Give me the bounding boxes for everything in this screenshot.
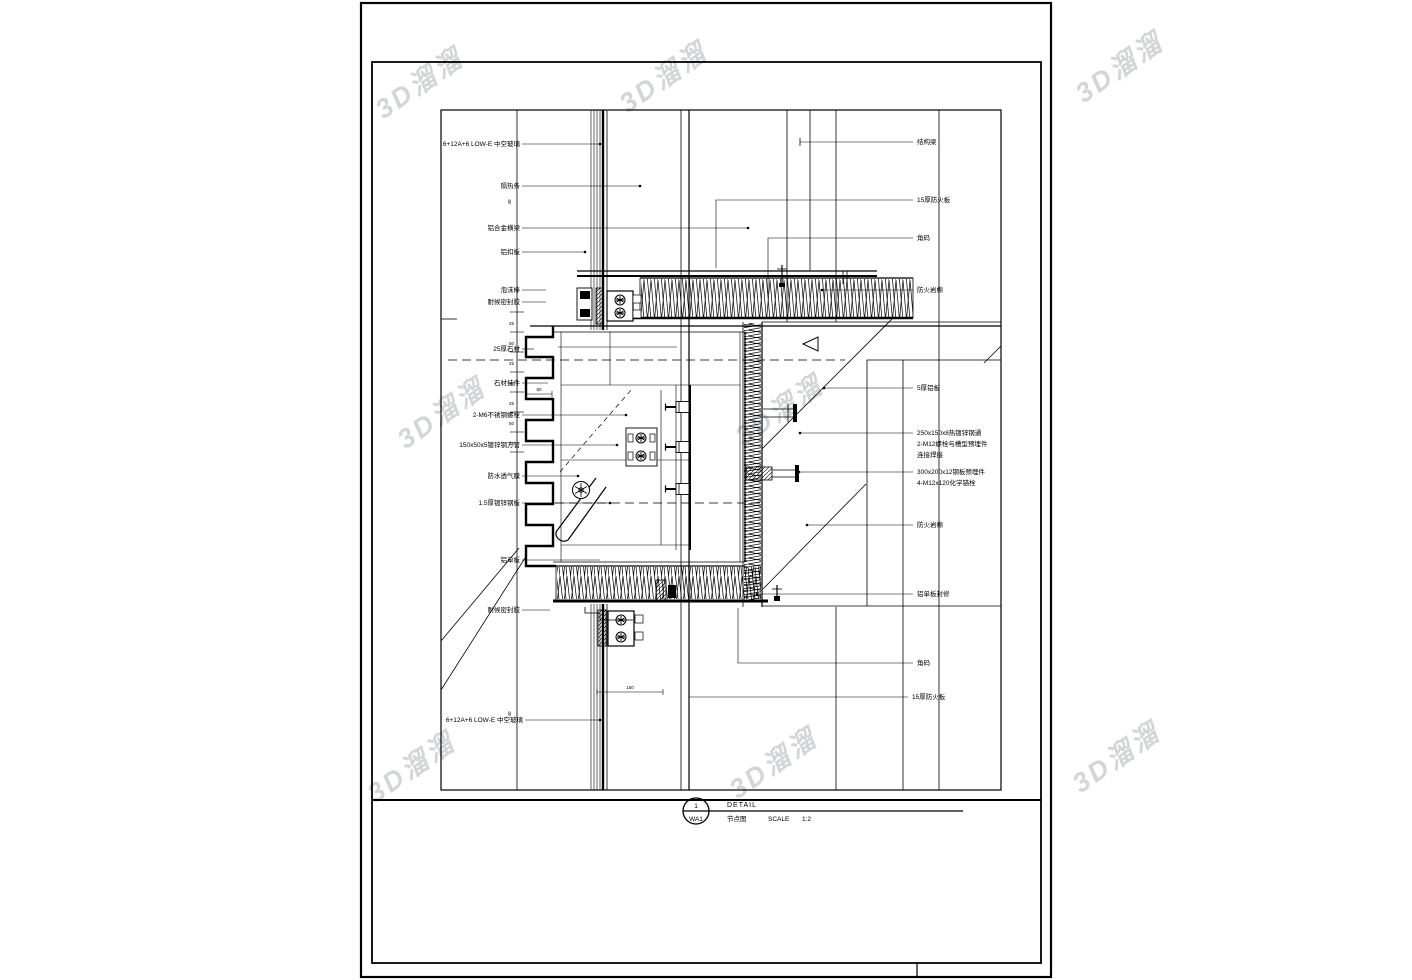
left-label-1: 隔热条 — [501, 181, 521, 190]
right-label-2: 角码 — [917, 233, 931, 242]
dim-50: 50 — [536, 387, 542, 392]
dim-150: 150 — [626, 685, 634, 690]
left-label-5: 耐候密封胶 — [488, 297, 521, 306]
detail-name: 节点图 — [727, 815, 747, 823]
right-label-5b: 2-M12螺栓与槽型预埋件 — [917, 439, 988, 448]
right-label-5a: 250x150x8热镀锌钢通 — [917, 428, 982, 437]
insulation-strip-right — [743, 322, 762, 607]
section-break-lines — [441, 548, 525, 690]
dim-ladder-0: 25 — [509, 321, 515, 326]
page-borders — [361, 3, 1051, 978]
mullion-connector-top — [577, 288, 641, 324]
dim-ladder-4: 25 — [509, 401, 515, 406]
left-labels: 6+12A+6 LOW-E 中空玻璃 隔热条 铝合金横梁 铝扣板 泡沫棒 耐候密… — [443, 139, 524, 724]
right-label-4: 5厚铝板 — [917, 383, 941, 392]
left-label-6: 25厚石材 — [493, 344, 520, 353]
detail-bubble-sheet: WA1 — [689, 816, 703, 823]
dim-ladder-3: 50 — [509, 381, 515, 386]
left-label-0: 6+12A+6 LOW-E 中空玻璃 — [443, 139, 521, 148]
cad-page: 3D溜溜 3D溜溜 3D溜溜 3D溜溜 3D溜溜 3D溜溜 3D溜溜 3D溜溜 — [0, 0, 1412, 980]
left-label-12: 铝单板 — [501, 555, 521, 564]
right-label-7: 防火岩棉 — [917, 520, 944, 529]
left-label-11: 1.5厚镀锌钢板 — [478, 498, 520, 507]
left-label-2: 铝合金横梁 — [488, 223, 521, 232]
right-label-5c: 连接焊接 — [917, 450, 944, 459]
left-label-8: 2-M6不锈钢螺栓 — [473, 410, 521, 419]
dim-ladder-1: 50 — [509, 341, 515, 346]
detail-title: DETAIL — [727, 802, 757, 809]
dim-40-bottom: 40 — [507, 711, 512, 717]
right-label-3: 防火岩棉 — [917, 285, 944, 294]
right-label-9: 角码 — [917, 658, 931, 667]
right-label-10: 15厚防火板 — [912, 692, 946, 701]
right-label-6b: 4-M12x120化学锚栓 — [917, 478, 976, 487]
right-label-1: 15厚防火板 — [917, 195, 951, 204]
left-label-10: 防水透气膜 — [488, 471, 521, 480]
detail-drawing: 6+12A+6 LOW-E 中空玻璃 隔热条 铝合金横梁 铝扣板 泡沫棒 耐候密… — [0, 0, 1412, 980]
dim-ladder-6: 25 — [509, 441, 515, 446]
left-label-3: 铝扣板 — [501, 247, 521, 256]
drawing-frame — [441, 110, 1001, 790]
right-label-6a: 300x200x12钢板预埋件 — [917, 467, 985, 476]
scale-value: 1:2 — [802, 816, 811, 823]
right-labels: 结构梁 15厚防火板 角码 防火岩棉 5厚铝板 250x150x8热镀锌钢通 2… — [912, 137, 988, 701]
left-label-4: 泡沫棒 — [501, 285, 521, 294]
detail-bubble-number: 1 — [694, 803, 698, 810]
dim-40-top: 40 — [507, 199, 512, 205]
slab-region — [530, 319, 1001, 606]
insulation-band-top — [608, 278, 913, 318]
dim-ladder-2: 25 — [509, 361, 515, 366]
right-label-8: 铝单板封修 — [917, 589, 950, 598]
title-block: 1 WA1 DETAIL 节点图 SCALE 1:2 — [683, 798, 963, 824]
dim-ladder-5: 50 — [509, 421, 515, 426]
window-box — [526, 326, 745, 566]
insulation-band-bottom — [553, 566, 768, 601]
right-label-0: 结构梁 — [917, 137, 937, 146]
right-leaders — [689, 138, 913, 697]
left-label-7: 石材挂件 — [494, 378, 521, 387]
glass-mullion-lines — [591, 110, 607, 790]
left-label-13: 耐候密封胶 — [488, 605, 521, 614]
scale-label: SCALE — [768, 816, 790, 823]
